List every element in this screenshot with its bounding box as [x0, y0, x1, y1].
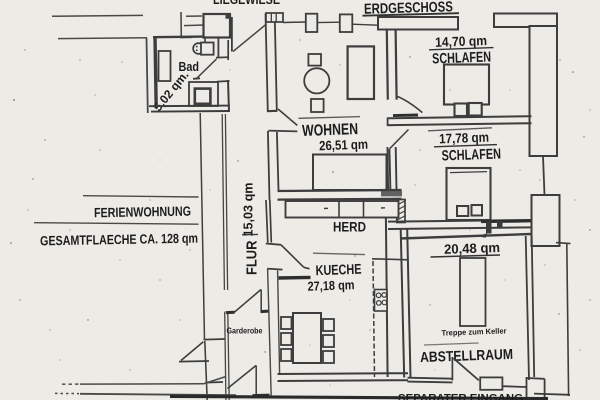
svg-text:14,70 qm: 14,70 qm — [435, 33, 487, 50]
svg-text:SEPARATER EINGANG: SEPARATER EINGANG — [398, 393, 523, 400]
svg-text:SCHLAFEN: SCHLAFEN — [441, 146, 501, 164]
svg-text:15,03 qm: 15,03 qm — [242, 183, 256, 237]
svg-text:20,48 qm: 20,48 qm — [444, 240, 500, 257]
svg-text:17,78 qm: 17,78 qm — [439, 130, 489, 147]
svg-text:27,18 qm: 27,18 qm — [307, 277, 354, 294]
svg-text:26,51 qm: 26,51 qm — [319, 137, 369, 154]
svg-text:Garderobe: Garderobe — [227, 327, 264, 336]
svg-text:FLUR: FLUR — [245, 240, 261, 275]
svg-text:LIEGEWIESE: LIEGEWIESE — [213, 0, 280, 7]
svg-text:FERIENWOHNUNG: FERIENWOHNUNG — [94, 204, 191, 221]
svg-text:KUECHE: KUECHE — [315, 262, 362, 280]
svg-text:GESAMTFLAECHE CA. 128 qm: GESAMTFLAECHE CA. 128 qm — [40, 231, 198, 249]
svg-text:ABSTELLRAUM: ABSTELLRAUM — [420, 347, 514, 366]
svg-text:HERD: HERD — [333, 219, 366, 235]
